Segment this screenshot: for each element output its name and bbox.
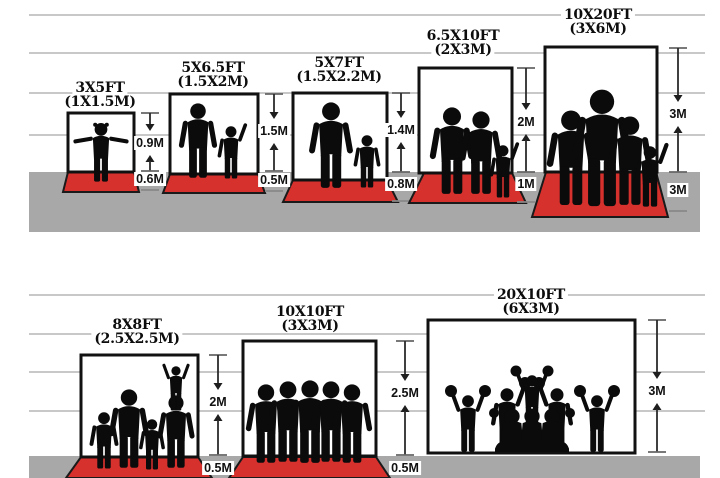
floor-dimension-label: 3M: [667, 183, 688, 197]
floor-dimension-label: 0.6M: [134, 172, 166, 186]
panel-title-m: (2.5X2.5M): [91, 332, 182, 346]
panel-title-m: (3X6M): [566, 22, 629, 36]
panel-20x10ft: [428, 320, 666, 453]
panel-title-m: (1X1.5M): [61, 95, 138, 109]
panel-title-ft: 5X6.5FT: [178, 61, 247, 75]
floor-dimension-label: 0.5M: [258, 173, 290, 187]
height-dimension-label: 3M: [646, 384, 667, 398]
floor-dimension-label: 1M: [515, 177, 536, 191]
red-carpet: [63, 172, 139, 192]
panel-title-ft: 8X8FT: [109, 318, 164, 332]
panel-title-ft: 10X10FT: [273, 305, 347, 319]
panel-title-ft: 6.5X10FT: [424, 29, 503, 43]
size-comparison-diagram: 3X5FT (1X1.5M) 5X6.5FT (1.5X2M) 5X7FT (1…: [0, 0, 720, 478]
panel-title-m: (1.5X2.2M): [293, 70, 384, 84]
red-carpet: [229, 457, 390, 478]
height-dimension-label: 1.4M: [385, 123, 417, 137]
floor-dimension-label: 0.5M: [389, 461, 421, 475]
height-dimension-label: 2.5M: [389, 386, 421, 400]
height-dimension-label: 2M: [515, 115, 536, 129]
red-carpet: [163, 174, 265, 193]
panel-title-m: (6X3M): [499, 302, 562, 316]
panel-title-ft: 5X7FT: [311, 56, 366, 70]
red-carpet: [66, 457, 212, 478]
panel-title-m: (3X3M): [278, 319, 341, 333]
floor-dimension-label: 0.5M: [202, 461, 234, 475]
height-dimension-label: 0.9M: [134, 136, 166, 150]
height-dimension-label: 2M: [207, 395, 228, 409]
panel-title-m: (2X3M): [431, 43, 494, 57]
panel-title-ft: 3X5FT: [72, 81, 127, 95]
floor-dimension-label: 0.8M: [385, 177, 417, 191]
panel-title-ft: 20X10FT: [494, 288, 568, 302]
panel-title-ft: 10X20FT: [561, 8, 635, 22]
panel-title-m: (1.5X2M): [174, 75, 251, 89]
height-dimension-label: 1.5M: [258, 124, 290, 138]
height-dimension-label: 3M: [667, 107, 688, 121]
